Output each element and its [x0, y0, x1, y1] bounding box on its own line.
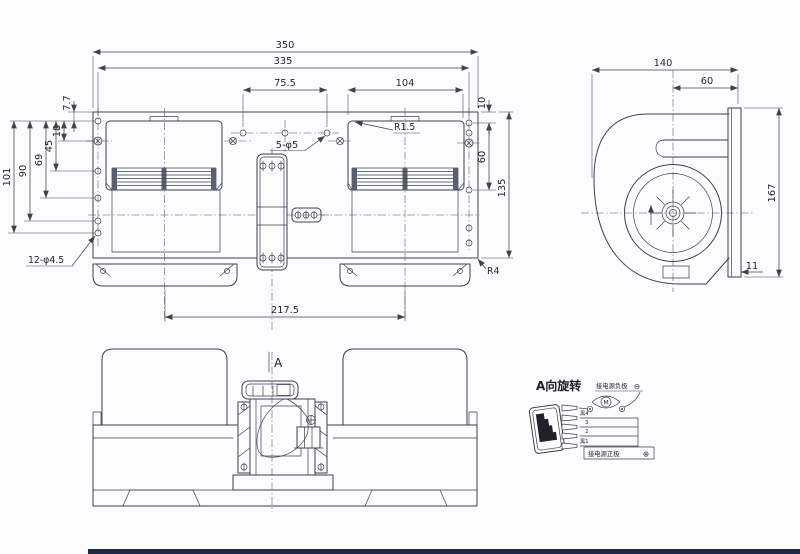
- note-r1-5: R1.5: [394, 122, 415, 133]
- dim-7-7: 7.7: [62, 95, 73, 111]
- motor-bracket-left: [238, 402, 250, 473]
- dim-140: 140: [654, 58, 673, 69]
- foot-pad-left: [123, 490, 200, 506]
- negative-symbol: ⊖: [634, 382, 640, 391]
- side-view: 140 60 167 11: [581, 58, 783, 292]
- dim-350: 350: [276, 40, 295, 51]
- drawing-sheet: 350 335 75.5 104 10 60 135 7.7: [0, 0, 800, 554]
- grille-left: [112, 168, 216, 190]
- wiring-connector-block: [529, 404, 565, 454]
- motor-pedestal: [233, 475, 333, 490]
- grille-right: [352, 168, 458, 190]
- fuse-symbol: M: [587, 396, 624, 412]
- capacitor: [294, 427, 323, 448]
- connector-front: [242, 381, 298, 399]
- motor-symbol: M: [603, 400, 608, 407]
- dim-60-side: 60: [701, 76, 713, 87]
- motor-bracket: [257, 154, 287, 270]
- negative-terminal-label: 接电源负极: [596, 381, 628, 390]
- dim-18: 18: [52, 125, 63, 137]
- dim-10: 10: [477, 97, 488, 109]
- note-r4: R4: [487, 266, 499, 277]
- front-view: A: [93, 349, 477, 512]
- dim-101: 101: [2, 168, 13, 187]
- dim-75-5: 75.5: [274, 78, 296, 89]
- bottom-stub: [663, 266, 689, 278]
- side-mounting-plate: [728, 108, 741, 277]
- wiring-diagram: A向旋转 黑4 3 2 黑1 M: [529, 378, 654, 459]
- dim-11: 11: [746, 261, 758, 272]
- blower-housing-right: [348, 117, 464, 253]
- wire-label-4: 黑1: [580, 438, 589, 445]
- housing-front-left: [102, 349, 227, 425]
- wiring-title: A向旋转: [536, 378, 581, 393]
- dim-90: 90: [18, 165, 29, 177]
- note-holes-5: 5-φ5: [276, 140, 298, 151]
- dim-135: 135: [497, 179, 508, 198]
- top-view: 350 335 75.5 104 10 60 135 7.7: [2, 40, 513, 330]
- dim-60-right: 60: [477, 151, 488, 163]
- dim-217-5: 217.5: [271, 305, 299, 316]
- wire-label-2: 3: [585, 420, 588, 426]
- positive-terminal-label: 接电源正极: [588, 449, 620, 458]
- terminal-screw: [307, 416, 316, 425]
- blower-housing-left: [106, 117, 222, 253]
- section-label: A: [274, 356, 283, 370]
- dim-69: 69: [34, 154, 45, 166]
- side-view-dimensions: 140 60 167 11: [592, 58, 783, 277]
- dim-167: 167: [767, 184, 778, 203]
- wire-label-3: 2: [585, 429, 588, 435]
- positive-symbol: ⊕: [643, 450, 649, 459]
- motor-front: [238, 381, 327, 475]
- dim-104: 104: [396, 78, 415, 89]
- dim-335: 335: [274, 56, 293, 67]
- housing-front-right: [343, 349, 467, 425]
- mounting-foot-left: [93, 264, 237, 286]
- foot-pad-right: [365, 490, 447, 506]
- note-holes-12: 12-φ4.5: [28, 255, 64, 266]
- outlet-duct: [656, 140, 728, 157]
- footer-bar: [88, 549, 800, 554]
- positive-terminal: 接电源正极 ⊕: [584, 447, 654, 459]
